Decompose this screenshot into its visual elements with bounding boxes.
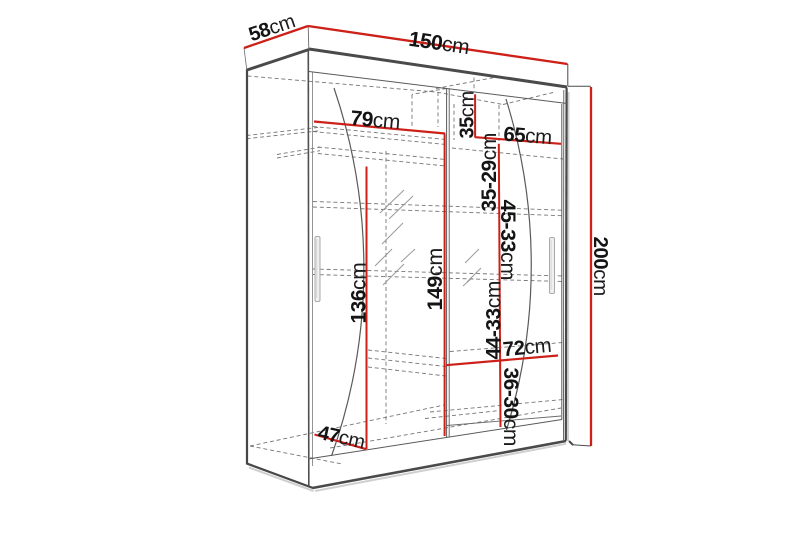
svg-text:79cm: 79cm [350, 107, 402, 134]
svg-text:72cm: 72cm [502, 334, 552, 361]
svg-text:45-33cm: 45-33cm [496, 200, 520, 281]
svg-text:36-30cm: 36-30cm [499, 368, 522, 447]
svg-text:35cm: 35cm [457, 91, 479, 138]
svg-text:65cm: 65cm [503, 123, 553, 150]
svg-text:149cm: 149cm [423, 248, 447, 310]
svg-text:200cm: 200cm [589, 237, 612, 296]
svg-text:136cm: 136cm [347, 263, 370, 324]
